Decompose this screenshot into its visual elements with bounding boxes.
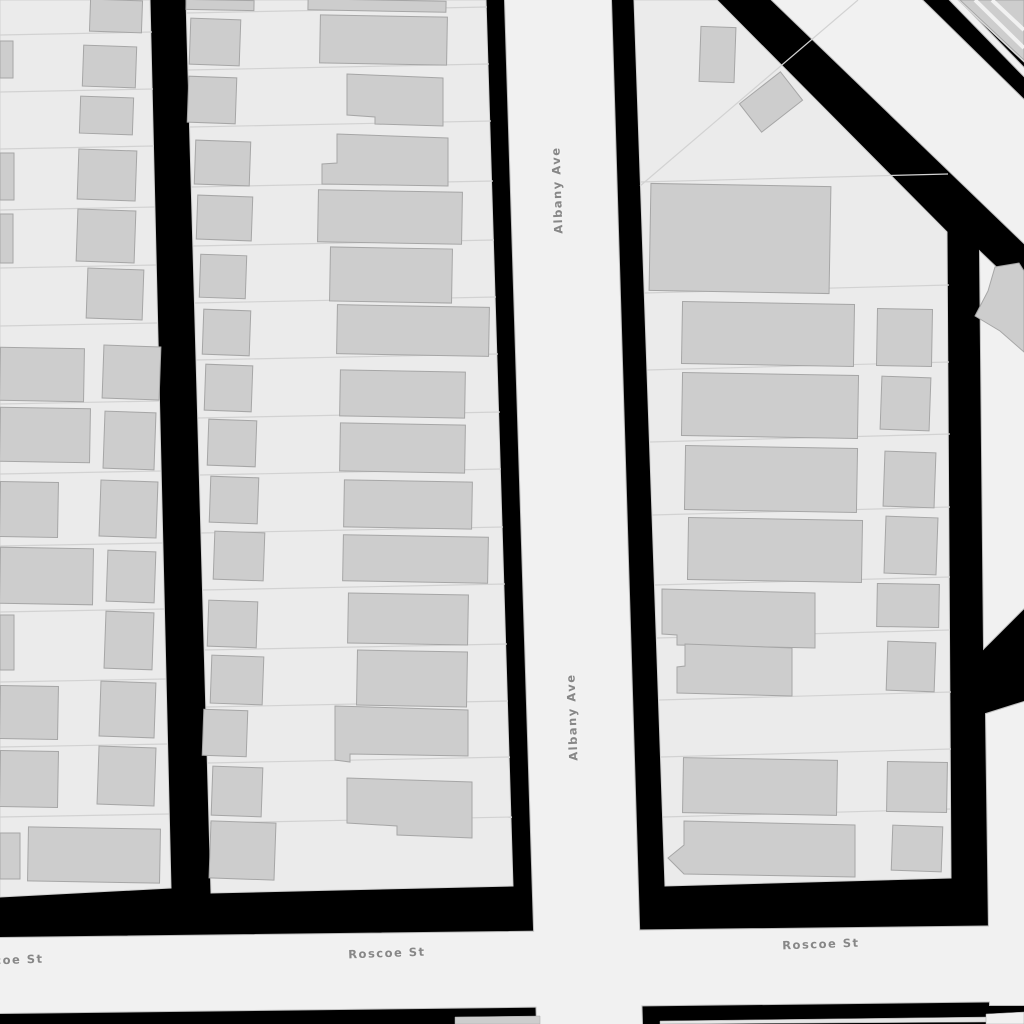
building xyxy=(662,589,815,648)
building xyxy=(199,254,246,299)
edge-sliver xyxy=(455,1016,540,1024)
building xyxy=(104,611,154,670)
street-label: Roscoe St xyxy=(348,945,426,962)
building xyxy=(681,302,854,367)
building xyxy=(86,268,144,320)
building xyxy=(322,134,448,186)
building xyxy=(28,827,161,883)
building xyxy=(337,305,490,357)
building xyxy=(79,96,133,135)
building xyxy=(0,750,58,807)
building xyxy=(0,407,90,463)
building xyxy=(886,641,936,692)
building xyxy=(76,209,136,263)
building xyxy=(887,761,948,812)
street-roscoe-st-fill xyxy=(0,926,1024,1013)
building xyxy=(330,247,453,303)
building xyxy=(0,833,20,879)
building xyxy=(343,535,489,584)
building xyxy=(211,766,263,817)
building xyxy=(207,600,258,648)
building xyxy=(202,309,251,356)
building xyxy=(320,15,448,65)
building xyxy=(344,480,473,529)
street-label: Roscoe St xyxy=(782,936,860,953)
building xyxy=(0,153,14,200)
map-canvas: Albany AveAlbany AveRoscoe StRoscoe StRo… xyxy=(0,0,1024,1024)
building xyxy=(668,821,855,877)
building xyxy=(340,423,466,473)
building xyxy=(97,746,156,806)
building xyxy=(699,26,736,82)
building xyxy=(77,149,137,201)
building xyxy=(213,531,265,581)
building xyxy=(99,480,158,538)
building xyxy=(883,451,936,508)
building xyxy=(186,0,254,11)
building xyxy=(335,706,468,762)
street-label: Roscoe St xyxy=(0,952,44,969)
building xyxy=(0,481,58,537)
building xyxy=(683,758,838,816)
building xyxy=(348,593,469,645)
building xyxy=(207,419,257,467)
building xyxy=(877,583,940,627)
building xyxy=(82,45,136,88)
building xyxy=(891,825,943,872)
building xyxy=(103,411,156,470)
building xyxy=(102,345,161,400)
building xyxy=(187,76,237,124)
building xyxy=(340,370,466,418)
building xyxy=(209,821,276,880)
building xyxy=(189,18,241,66)
building xyxy=(677,644,792,696)
building xyxy=(687,517,862,582)
building xyxy=(196,195,253,241)
building xyxy=(202,709,248,757)
building xyxy=(0,547,93,605)
building xyxy=(0,685,58,739)
edge-sliver xyxy=(986,1012,1024,1024)
building xyxy=(877,309,933,367)
building xyxy=(357,650,468,707)
building xyxy=(0,214,13,263)
building xyxy=(884,516,938,575)
building xyxy=(106,550,156,603)
building xyxy=(308,0,446,12)
building xyxy=(0,615,14,670)
building xyxy=(204,364,253,412)
building xyxy=(681,372,858,438)
building xyxy=(649,183,831,293)
map-viewport[interactable]: Albany AveAlbany AveRoscoe StRoscoe StRo… xyxy=(0,0,1024,1024)
building xyxy=(210,655,264,705)
building xyxy=(880,376,931,431)
building xyxy=(89,0,142,33)
street-right-lower-fill xyxy=(986,702,1024,1005)
building xyxy=(684,446,857,513)
building xyxy=(318,190,463,245)
building xyxy=(0,347,84,401)
building xyxy=(194,140,251,186)
building xyxy=(0,41,13,78)
building xyxy=(99,681,156,738)
building xyxy=(209,476,259,524)
